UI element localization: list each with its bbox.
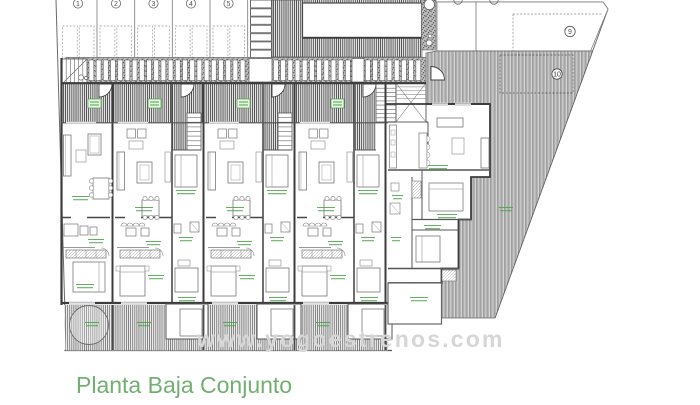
svg-text:1: 1 — [76, 1, 80, 8]
svg-text:2: 2 — [114, 1, 118, 8]
svg-text:4: 4 — [189, 1, 193, 8]
svg-text:5: 5 — [227, 1, 231, 8]
svg-text:Planta Baja Conjunto: Planta Baja Conjunto — [76, 372, 292, 398]
svg-text:9: 9 — [568, 29, 572, 36]
svg-text:10: 10 — [553, 72, 561, 79]
svg-text:3: 3 — [152, 1, 156, 8]
svg-text:www.yogoestrenos.com: www.yogoestrenos.com — [196, 326, 505, 352]
